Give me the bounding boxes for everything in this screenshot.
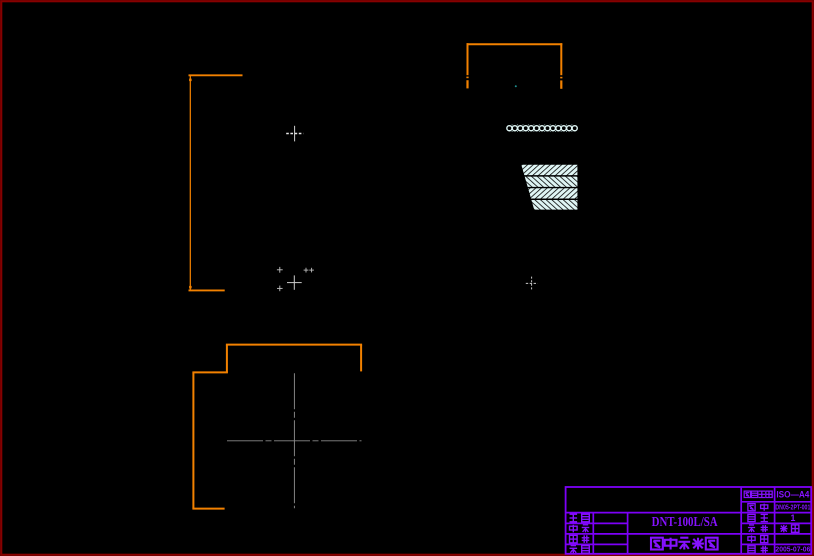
- svg-text:1: 1: [790, 513, 795, 523]
- svg-text:ISO—A4: ISO—A4: [776, 490, 810, 500]
- svg-text:2005-07-06: 2005-07-06: [775, 545, 810, 554]
- svg-text:DNT-100L/SA: DNT-100L/SA: [652, 514, 718, 529]
- svg-text:DN05-2PT-001: DN05-2PT-001: [775, 502, 810, 511]
